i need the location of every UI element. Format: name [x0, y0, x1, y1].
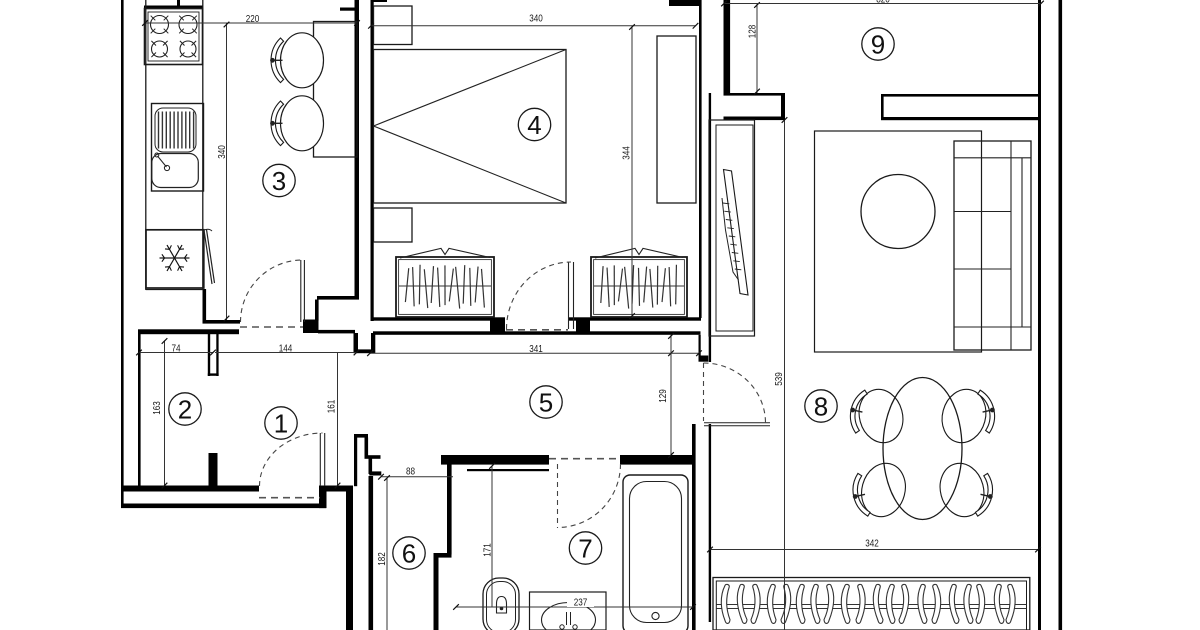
svg-text:237: 237 [574, 597, 588, 609]
svg-text:340: 340 [216, 145, 228, 159]
svg-text:129: 129 [657, 389, 669, 403]
svg-text:74: 74 [171, 343, 180, 355]
svg-text:128: 128 [747, 25, 759, 39]
svg-text:8: 8 [814, 391, 828, 421]
svg-text:9: 9 [871, 29, 885, 59]
svg-text:163: 163 [151, 401, 163, 415]
svg-text:144: 144 [279, 342, 293, 354]
svg-text:344: 344 [621, 146, 633, 160]
svg-text:3: 3 [272, 166, 286, 196]
svg-text:161: 161 [326, 400, 338, 414]
svg-text:1: 1 [274, 408, 288, 438]
svg-text:182: 182 [376, 552, 388, 566]
svg-text:7: 7 [578, 533, 592, 563]
svg-text:88: 88 [406, 466, 415, 478]
svg-text:5: 5 [539, 387, 553, 417]
svg-text:539: 539 [773, 372, 785, 386]
svg-text:341: 341 [529, 343, 543, 355]
svg-text:342: 342 [865, 538, 879, 550]
svg-text:820: 820 [876, 0, 890, 6]
svg-text:2: 2 [178, 394, 192, 424]
svg-text:171: 171 [482, 543, 494, 557]
svg-text:6: 6 [402, 538, 416, 568]
svg-text:4: 4 [527, 110, 541, 140]
svg-text:340: 340 [529, 13, 543, 25]
svg-text:220: 220 [246, 13, 260, 25]
